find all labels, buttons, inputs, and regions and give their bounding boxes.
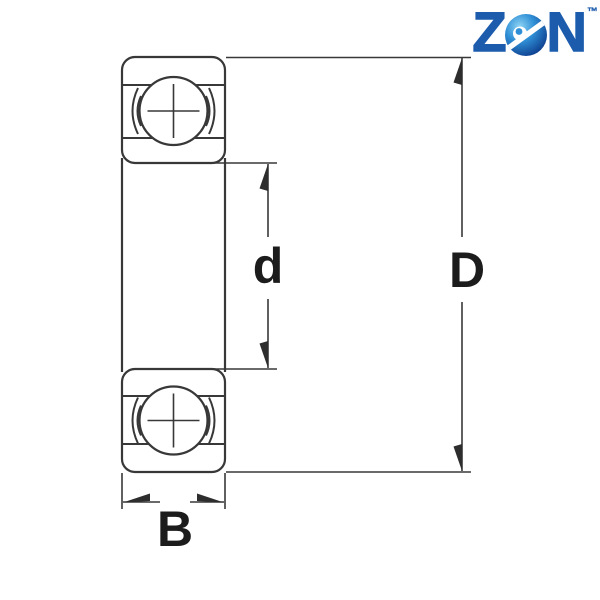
B-arrowhead-right-icon [197,494,224,503]
bearing-diagram-page: d D B Z [0,0,600,600]
bearing-body [122,57,225,472]
zen-logo: Z N ™ [472,4,598,60]
D-arrowhead-up-icon [454,58,463,85]
B-arrowhead-left-icon [123,494,150,503]
bore-diameter-label: d [253,238,284,294]
D-arrowhead-down-icon [454,444,463,471]
globe-e-icon [504,10,548,54]
trademark-symbol: ™ [587,7,598,18]
logo-letter-z: Z [472,4,504,60]
bearing-cross-section-drawing: d D B [0,0,600,600]
d-arrowhead-down-icon [260,341,269,368]
width-label: B [157,501,193,557]
outer-diameter-label: D [449,242,485,298]
globe-e-eye [515,28,522,35]
d-arrowhead-up-icon [260,164,269,191]
logo-letter-n: N [547,4,585,60]
